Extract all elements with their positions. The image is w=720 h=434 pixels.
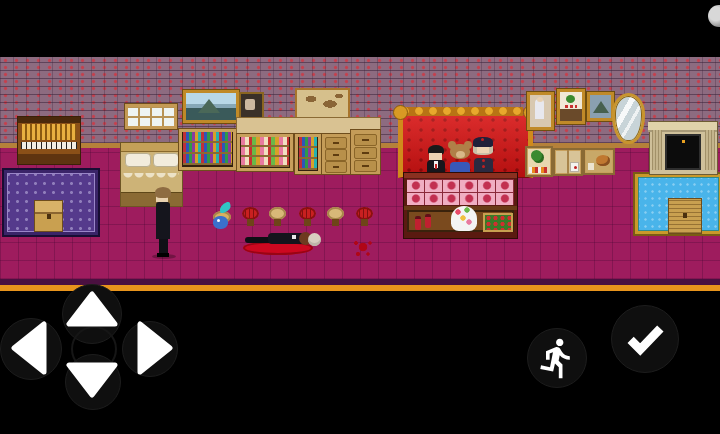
- arrow-up-icon[interactable]: [66, 291, 118, 327]
- coat-button: [482, 165, 485, 168]
- fireplace-column: [652, 130, 662, 170]
- chest-lock: [683, 213, 687, 218]
- dead-body-cuff: [292, 235, 296, 239]
- drawer-cabinet[interactable]: [321, 133, 351, 175]
- bird-crest: [218, 201, 232, 213]
- bookshelf-interior: [182, 132, 233, 167]
- checkmark-icon: [622, 316, 668, 362]
- stone-fireplace[interactable]: [649, 121, 718, 175]
- display-box-plant[interactable]: [525, 146, 553, 177]
- display-box-cat[interactable]: [583, 148, 615, 175]
- still-life-fruit: [564, 104, 577, 109]
- counter-edge: [404, 173, 517, 178]
- butler-shoes: [157, 253, 169, 257]
- painting-peak: [198, 99, 220, 113]
- bird-body: [213, 216, 228, 229]
- bed-pillow: [153, 153, 179, 167]
- potion-bottle: [425, 214, 431, 228]
- drawer: [325, 161, 347, 173]
- fireplace-ember: [682, 140, 685, 143]
- drawer: [354, 147, 377, 159]
- coat-button: [482, 159, 485, 162]
- book-row: [183, 154, 232, 165]
- drawer: [354, 160, 377, 172]
- toy-row: [241, 137, 289, 147]
- sofa-scroll-left: [393, 105, 408, 120]
- run-button[interactable]: [527, 328, 587, 388]
- portrait-painting: [527, 92, 554, 130]
- wooden-chest[interactable]: [34, 200, 63, 232]
- counter-shelf: [407, 210, 514, 232]
- partial-moon-indicator: [708, 5, 720, 27]
- wall-mirror: [612, 93, 645, 144]
- fireplace-column: [705, 130, 715, 170]
- butler-hair: [155, 187, 171, 198]
- bookshelf-narrow[interactable]: [294, 133, 322, 175]
- arrow-right-icon[interactable]: [137, 321, 173, 376]
- mountain-painting: [183, 90, 239, 123]
- bird-eye: [217, 219, 220, 222]
- book-row: [183, 132, 232, 143]
- arrow-left-icon[interactable]: [11, 321, 47, 376]
- small-landscape-painting: [587, 92, 614, 121]
- portrait-figure: [245, 99, 255, 110]
- portrait-dress: [535, 99, 544, 119]
- potion-bottle: [415, 216, 421, 230]
- slatted-chest[interactable]: [668, 198, 702, 234]
- organ-keys: [21, 142, 77, 149]
- bookshelf[interactable]: [178, 128, 237, 171]
- book-row: [299, 159, 317, 170]
- book-row: [299, 137, 317, 148]
- curio-shelf[interactable]: [236, 133, 294, 172]
- red-stool: [356, 207, 373, 226]
- blood-splatter: [353, 238, 373, 258]
- red-stool: [299, 207, 316, 226]
- seated-hatted-girl[interactable]: [471, 137, 496, 177]
- dessert-stand: [451, 206, 477, 231]
- counter-panels: [407, 179, 514, 205]
- portrait-head: [537, 97, 543, 102]
- display-box-paper[interactable]: [553, 148, 583, 176]
- girl-face: [477, 146, 489, 153]
- bed-pillow: [125, 153, 151, 167]
- paper-seal: [574, 166, 577, 169]
- butler-character[interactable]: [150, 185, 178, 259]
- curio-interior: [240, 137, 290, 168]
- boxed-trinkets: [529, 167, 547, 173]
- pipe-organ[interactable]: [17, 116, 81, 165]
- toy-row: [241, 157, 289, 167]
- wooden-stool: [269, 207, 286, 226]
- bed-sheet-edge: [123, 173, 179, 181]
- boxed-plant: [531, 150, 542, 161]
- arrow-down-icon[interactable]: [66, 362, 118, 398]
- ornate-counter[interactable]: [403, 172, 518, 239]
- window-panes: [128, 107, 174, 126]
- chest-lid: [35, 201, 62, 214]
- organ-top: [18, 117, 80, 123]
- man-tie: [435, 164, 437, 169]
- hat-ornament: [481, 138, 484, 141]
- bear-muzzle: [456, 151, 465, 158]
- butler-legs: [159, 239, 168, 254]
- confirm-button[interactable]: [611, 305, 679, 373]
- chest-lock: [47, 214, 51, 219]
- sofa-gold-crest: [398, 107, 523, 116]
- organ-pipes: [22, 124, 76, 140]
- game-viewport: [0, 57, 720, 291]
- running-person-icon: [535, 336, 579, 380]
- blue-bird[interactable]: [211, 203, 233, 233]
- bed-headboard: [121, 143, 182, 152]
- wooden-stool: [327, 207, 344, 226]
- butler-suit: [156, 202, 170, 239]
- flower-crate: [483, 213, 513, 232]
- dead-body-head: [308, 233, 321, 246]
- book-row: [299, 148, 317, 159]
- man-face: [429, 153, 442, 160]
- landscape-mountain: [593, 101, 609, 113]
- drawer: [325, 149, 347, 161]
- game-screen: [0, 0, 720, 434]
- sleeping-cat: [596, 155, 610, 166]
- drawer: [354, 134, 377, 146]
- drawer-cabinet[interactable]: [350, 129, 381, 175]
- book-row: [183, 143, 232, 154]
- wall-map: [295, 88, 350, 119]
- window: [124, 103, 178, 130]
- small-framed-portrait: [239, 92, 264, 119]
- bookshelf-interior: [298, 137, 318, 171]
- still-life-painting: [557, 89, 585, 124]
- drawer: [325, 137, 347, 149]
- still-life-plant: [566, 95, 575, 103]
- boxed-item: [588, 163, 594, 170]
- toy-row: [241, 147, 289, 157]
- red-stool: [242, 207, 259, 226]
- organ-base: [18, 154, 80, 164]
